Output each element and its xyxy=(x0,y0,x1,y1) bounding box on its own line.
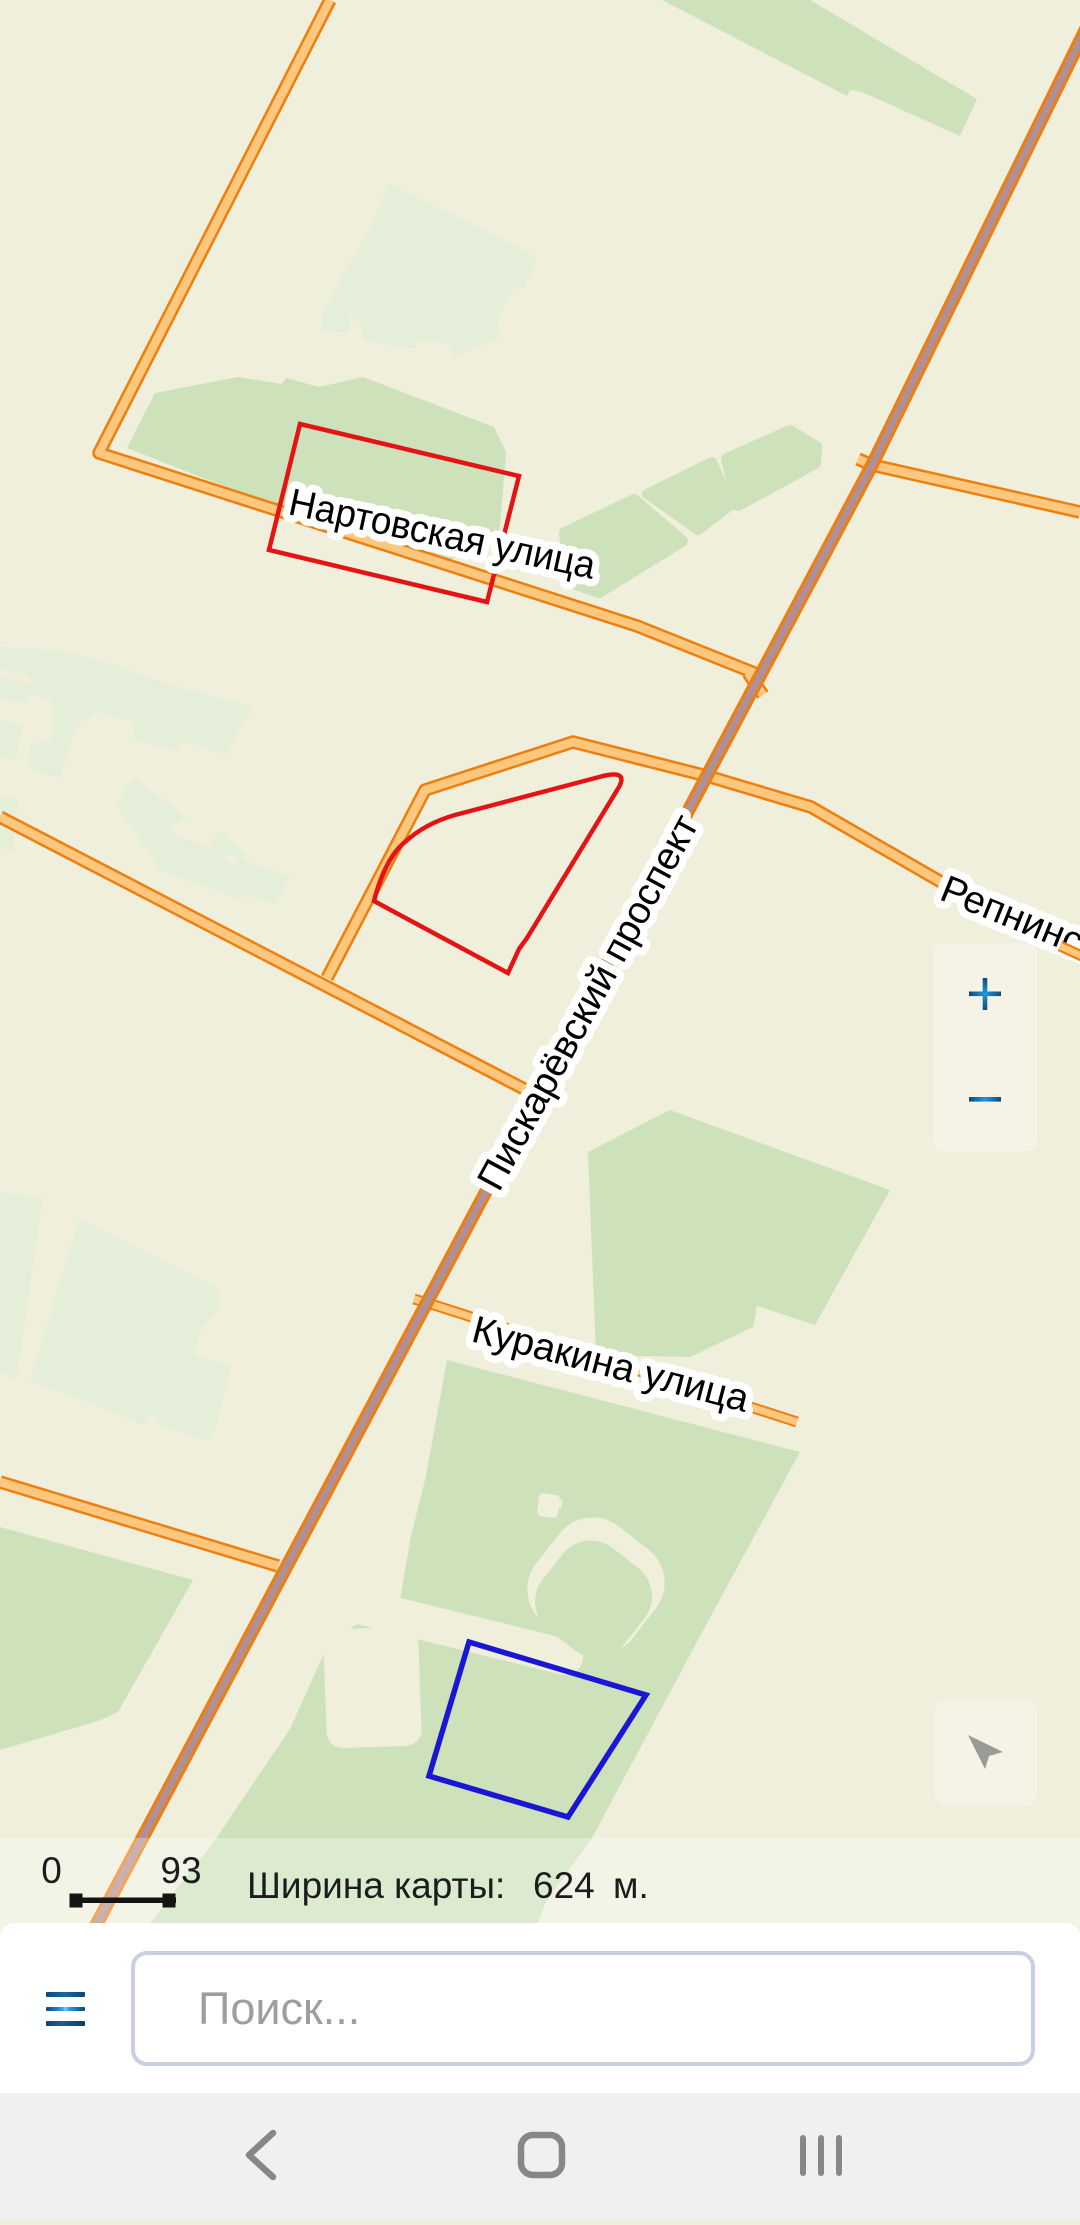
svg-text:624: 624 xyxy=(533,1865,595,1906)
svg-text:0: 0 xyxy=(41,1850,62,1891)
svg-text:93: 93 xyxy=(160,1850,201,1891)
svg-text:Ширина карты:: Ширина карты: xyxy=(247,1865,505,1906)
svg-text:м.: м. xyxy=(613,1865,649,1906)
